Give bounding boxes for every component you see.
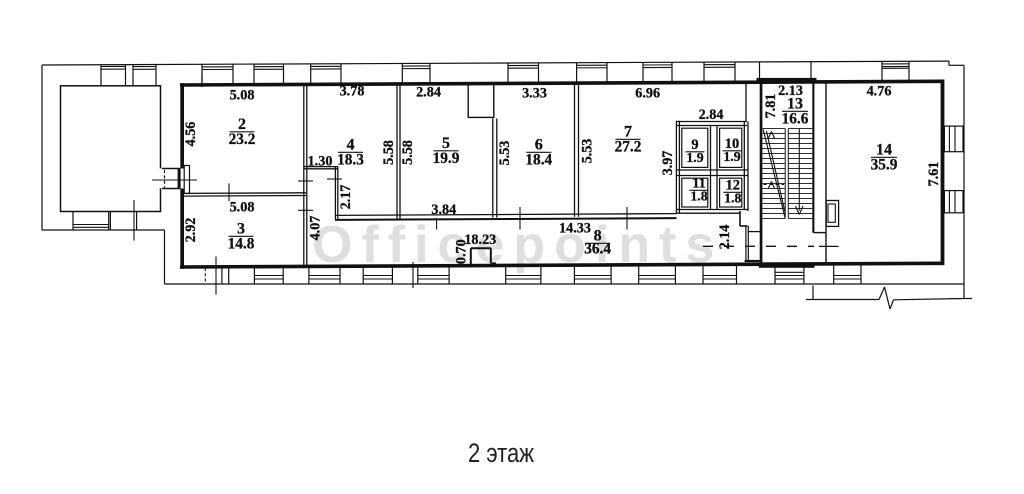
svg-text:14.33: 14.33 — [559, 221, 591, 237]
svg-text:1.30: 1.30 — [308, 154, 333, 170]
svg-text:4.76: 4.76 — [867, 84, 892, 100]
svg-text:6.96: 6.96 — [635, 86, 660, 102]
svg-text:2.84: 2.84 — [699, 107, 724, 123]
svg-text:1.8: 1.8 — [690, 189, 707, 204]
svg-text:5.58: 5.58 — [400, 140, 416, 165]
svg-text:4.56: 4.56 — [183, 122, 199, 147]
svg-text:5.08: 5.08 — [230, 200, 255, 216]
svg-text:35.9: 35.9 — [871, 157, 898, 174]
svg-text:18.3: 18.3 — [337, 152, 364, 169]
svg-text:16.6: 16.6 — [782, 111, 809, 128]
svg-text:7.81: 7.81 — [763, 94, 779, 119]
svg-text:1.9: 1.9 — [686, 150, 703, 165]
svg-text:2.84: 2.84 — [416, 85, 441, 101]
svg-text:0.70: 0.70 — [453, 239, 469, 264]
svg-text:5.08: 5.08 — [230, 88, 255, 104]
svg-text:3.97: 3.97 — [660, 151, 676, 176]
svg-text:1.9: 1.9 — [723, 149, 740, 164]
svg-text:3.78: 3.78 — [340, 84, 365, 100]
svg-text:27.2: 27.2 — [615, 139, 642, 156]
svg-text:5.58: 5.58 — [381, 140, 397, 165]
svg-text:19.9: 19.9 — [433, 150, 460, 167]
svg-text:23.2: 23.2 — [229, 131, 256, 148]
svg-text:5.53: 5.53 — [497, 141, 513, 166]
svg-text:3.33: 3.33 — [522, 86, 547, 102]
svg-text:3.84: 3.84 — [431, 202, 456, 218]
svg-text:18.4: 18.4 — [525, 152, 552, 169]
svg-text:7.61: 7.61 — [926, 162, 942, 187]
svg-text:4.07: 4.07 — [308, 216, 324, 241]
svg-text:1.8: 1.8 — [724, 191, 741, 206]
svg-text:2.92: 2.92 — [183, 218, 199, 243]
svg-text:14.8: 14.8 — [228, 236, 255, 253]
svg-text:5.53: 5.53 — [580, 139, 596, 164]
svg-text:36.4: 36.4 — [584, 240, 611, 257]
svg-text:2.14: 2.14 — [717, 225, 733, 250]
svg-text:2 этаж: 2 этаж — [468, 438, 534, 468]
svg-text:2.17: 2.17 — [338, 185, 354, 210]
